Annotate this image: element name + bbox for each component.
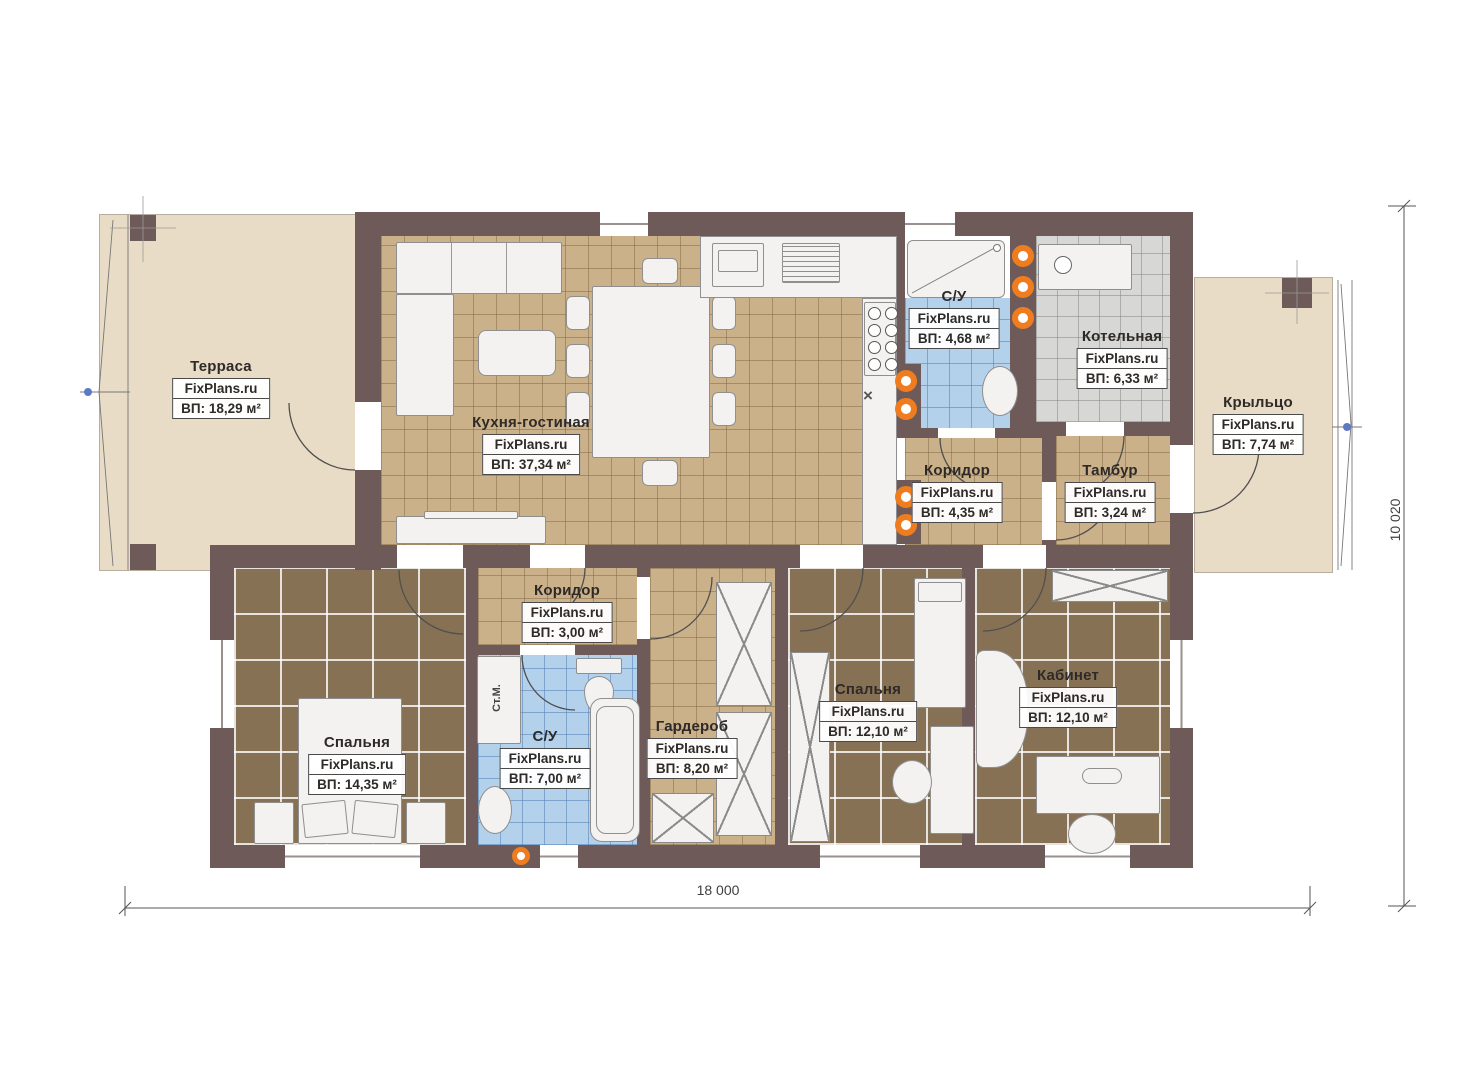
window-bedroom-second-bottom <box>820 845 920 868</box>
drying-rack <box>782 243 840 283</box>
heater <box>1012 307 1034 329</box>
room-label-bathroom-top: С/У FixPlans.ru ВП: 4,68 м² <box>909 288 1000 349</box>
sofa-left <box>396 294 454 416</box>
room-area: ВП: 3,00 м² <box>523 622 612 642</box>
wall-top <box>355 212 1193 236</box>
dining-chair <box>566 344 590 378</box>
washbasin-top <box>982 366 1018 416</box>
room-label-porch: Крыльцо FixPlans.ru ВП: 7,74 м² <box>1213 394 1304 455</box>
coffee-table <box>478 330 556 376</box>
door-bathroom-top <box>938 428 995 438</box>
room-name: Котельная <box>1077 328 1168 345</box>
tv-stand <box>396 516 546 544</box>
bathtub-inner <box>596 706 634 834</box>
room-label-boiler: Котельная FixPlans.ru ВП: 6,33 м² <box>1077 328 1168 389</box>
watermark: FixPlans.ru <box>523 603 612 622</box>
dining-chair <box>642 258 678 284</box>
room-label-bedroom-master: Спальня FixPlans.ru ВП: 14,35 м² <box>308 734 406 795</box>
dining-chair <box>712 392 736 426</box>
office-wardrobe <box>1052 570 1168 602</box>
room-info-box: FixPlans.ru ВП: 12,10 м² <box>819 701 917 742</box>
washbasin-main <box>478 786 512 834</box>
room-area: ВП: 7,74 м² <box>1214 434 1303 454</box>
door-wardrobe <box>637 577 650 639</box>
room-info-box: FixPlans.ru ВП: 12,10 м² <box>1019 687 1117 728</box>
washing-machine-label: Ст.М. <box>491 684 503 712</box>
heater <box>1012 276 1034 298</box>
dining-chair <box>566 296 590 330</box>
room-info-box: FixPlans.ru ВП: 18,29 м² <box>172 378 270 419</box>
room-info-box: FixPlans.ru ВП: 8,20 м² <box>647 738 738 779</box>
room-label-corridor-main: Коридор FixPlans.ru ВП: 4,35 м² <box>912 462 1003 523</box>
dining-chair <box>712 296 736 330</box>
terrace-post-bottom <box>130 544 156 570</box>
dining-table <box>592 286 710 458</box>
bed-second-pillow <box>918 582 962 602</box>
door-corridor-vestibule <box>1042 482 1056 540</box>
room-name: Крыльцо <box>1213 394 1304 411</box>
room-info-box: FixPlans.ru ВП: 7,00 м² <box>500 748 591 789</box>
terrace-post-top <box>130 215 156 241</box>
office-desk-item <box>1082 768 1122 784</box>
heater <box>895 370 917 392</box>
boiler-dial <box>1054 256 1072 274</box>
window-bath-top <box>905 212 955 236</box>
room-info-box: FixPlans.ru ВП: 4,68 м² <box>909 308 1000 349</box>
watermark: FixPlans.ru <box>173 379 269 398</box>
wall-left-upper <box>355 212 381 402</box>
room-area: ВП: 3,24 м² <box>1066 502 1155 522</box>
dimension-height-label: 10 020 <box>1387 485 1403 555</box>
room-label-bedroom-second: Спальня FixPlans.ru ВП: 12,10 м² <box>819 681 917 742</box>
room-label-office: Кабинет FixPlans.ru ВП: 12,10 м² <box>1019 667 1117 728</box>
room-info-box: FixPlans.ru ВП: 7,74 м² <box>1213 414 1304 455</box>
room-name: Тамбур <box>1065 462 1156 479</box>
porch-post <box>1282 278 1312 308</box>
room-name: Терраса <box>172 358 270 375</box>
room-name: Коридор <box>522 582 613 599</box>
watermark: FixPlans.ru <box>820 702 916 721</box>
watermark: FixPlans.ru <box>910 309 999 328</box>
window-kitchen-top <box>600 212 648 236</box>
room-label-terrace: Терраса FixPlans.ru ВП: 18,29 м² <box>172 358 270 419</box>
room-name: Спальня <box>308 734 406 751</box>
heater <box>895 398 917 420</box>
watermark: FixPlans.ru <box>309 755 405 774</box>
room-name: Кухня-гостиная <box>472 414 590 431</box>
wall-kitchen-bath <box>897 236 905 366</box>
door-terrace <box>355 402 381 470</box>
window-office-right <box>1170 640 1193 728</box>
nightstand <box>406 802 446 844</box>
room-info-box: FixPlans.ru ВП: 6,33 м² <box>1077 348 1168 389</box>
door-boiler <box>1066 422 1124 436</box>
door-corridor-small <box>530 545 585 568</box>
wall-right <box>1170 212 1193 868</box>
door-bedroom-master <box>397 545 463 568</box>
sofa-top <box>396 242 562 294</box>
wall-wardrobe-bedroom2 <box>775 568 788 845</box>
window-bedroom-master-left <box>210 640 234 728</box>
toilet-tank <box>576 658 622 674</box>
pillow <box>351 800 398 838</box>
heater <box>1012 245 1034 267</box>
dimension-width-label: 18 000 <box>697 882 740 898</box>
room-info-box: FixPlans.ru ВП: 3,00 м² <box>522 602 613 643</box>
pillow <box>301 800 348 838</box>
door-office <box>983 545 1046 568</box>
dining-chair <box>712 344 736 378</box>
heater <box>512 847 530 865</box>
wardrobe-cabinet <box>652 793 714 843</box>
tv <box>424 511 518 519</box>
floor-plan: × Ст.М. <box>0 0 1474 1080</box>
watermark: FixPlans.ru <box>483 435 579 454</box>
watermark: FixPlans.ru <box>648 739 737 758</box>
watermark: FixPlans.ru <box>1214 415 1303 434</box>
room-area: ВП: 8,20 м² <box>648 758 737 778</box>
room-area: ВП: 4,35 м² <box>913 502 1002 522</box>
door-bathroom-main <box>520 645 575 655</box>
room-label-vestibule: Тамбур FixPlans.ru ВП: 3,24 м² <box>1065 462 1156 523</box>
room-area: ВП: 14,35 м² <box>309 774 405 794</box>
room-info-box: FixPlans.ru ВП: 14,35 м² <box>308 754 406 795</box>
door-bedroom-second <box>800 545 863 568</box>
room-label-kitchen-living: Кухня-гостиная FixPlans.ru ВП: 37,34 м² <box>472 414 590 475</box>
room-area: ВП: 6,33 м² <box>1078 368 1167 388</box>
boiler-unit <box>1038 244 1132 290</box>
room-name: Спальня <box>819 681 917 698</box>
watermark: FixPlans.ru <box>501 749 590 768</box>
room-area: ВП: 12,10 м² <box>820 721 916 741</box>
chair-bedroom2 <box>892 760 932 804</box>
room-info-box: FixPlans.ru ВП: 4,35 м² <box>912 482 1003 523</box>
room-name: С/У <box>500 728 591 745</box>
room-area: ВП: 7,00 м² <box>501 768 590 788</box>
watermark: FixPlans.ru <box>1066 483 1155 502</box>
room-label-wardrobe: Гардероб FixPlans.ru ВП: 8,20 м² <box>647 718 738 779</box>
wardrobe-cabinet <box>716 582 772 706</box>
kitchen-sink-basin <box>718 250 758 272</box>
stove <box>864 302 896 376</box>
window-bedroom-master-bottom <box>285 845 420 868</box>
room-label-bathroom-main: С/У FixPlans.ru ВП: 7,00 м² <box>500 728 591 789</box>
room-name: Гардероб <box>647 718 738 735</box>
room-name: Кабинет <box>1019 667 1117 684</box>
office-desk <box>1036 756 1160 814</box>
room-name: Коридор <box>912 462 1003 479</box>
room-label-corridor-small: Коридор FixPlans.ru ВП: 3,00 м² <box>522 582 613 643</box>
window-bathroom-main-bottom <box>540 845 578 868</box>
watermark: FixPlans.ru <box>1078 349 1167 368</box>
room-info-box: FixPlans.ru ВП: 3,24 м² <box>1065 482 1156 523</box>
sink-cross-mark: × <box>863 386 873 406</box>
room-area: ВП: 37,34 м² <box>483 454 579 474</box>
room-area: ВП: 12,10 м² <box>1020 707 1116 727</box>
chair-office <box>1068 814 1116 854</box>
nightstand <box>254 802 294 844</box>
desk-bedroom2 <box>930 726 974 834</box>
room-info-box: FixPlans.ru ВП: 37,34 м² <box>482 434 580 475</box>
watermark: FixPlans.ru <box>1020 688 1116 707</box>
room-area: ВП: 18,29 м² <box>173 398 269 418</box>
dining-chair <box>642 460 678 486</box>
watermark: FixPlans.ru <box>913 483 1002 502</box>
door-entrance <box>1170 445 1193 513</box>
room-name: С/У <box>909 288 1000 305</box>
room-area: ВП: 4,68 м² <box>910 328 999 348</box>
